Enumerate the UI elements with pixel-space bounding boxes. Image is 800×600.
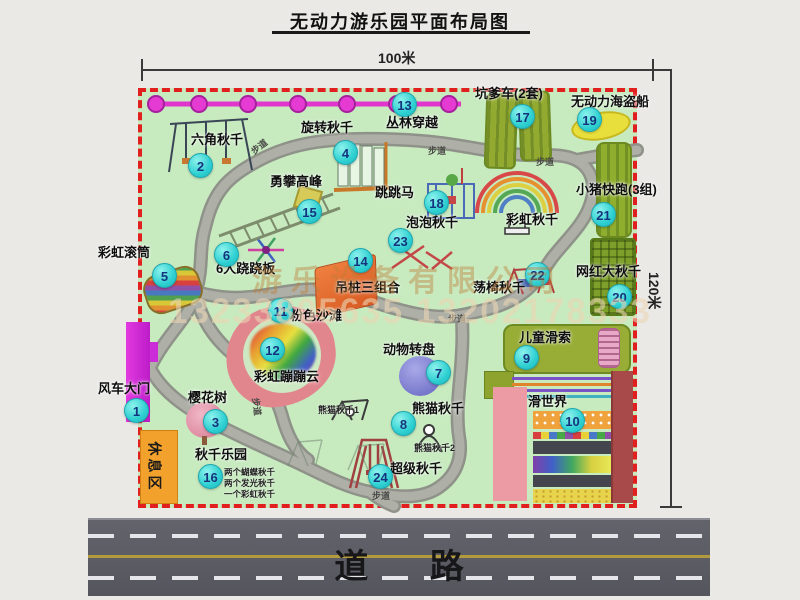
label-rotating-swing: 旋转秋千 xyxy=(301,121,353,136)
label-jumping-horse: 跳跳马 xyxy=(375,186,414,201)
walkway-label: 步道 xyxy=(428,144,446,157)
pit-car-panel-1 xyxy=(484,92,519,169)
label-climbing-peak: 勇攀高峰 xyxy=(270,175,322,190)
badge-19: 19 xyxy=(577,107,602,132)
badge-14: 14 xyxy=(348,248,373,273)
label-animal-carousel: 动物转盘 xyxy=(383,343,435,358)
badge-21: 21 xyxy=(591,202,616,227)
dim-line-top xyxy=(142,69,672,71)
label-windmill-gate: 风车大门 xyxy=(98,382,150,397)
zipline-track-3 xyxy=(512,389,614,392)
badge-13: 13 xyxy=(392,92,417,117)
label-swing-chair: 荡椅秋千 xyxy=(473,281,525,296)
label-pit-car: 坑爹车(2套) xyxy=(475,87,543,102)
badge-18: 18 xyxy=(424,190,449,215)
slide-stripe-rainbow xyxy=(533,456,611,473)
label-swing-park: 秋千乐园 xyxy=(195,448,247,463)
slide-world-tower-bar xyxy=(611,371,633,503)
badge-8: 8 xyxy=(391,411,416,436)
badge-3: 3 xyxy=(203,409,228,434)
zipline-track-1 xyxy=(512,377,614,380)
slide-stripe-yellow xyxy=(533,489,611,503)
playground-layout-image: 无动力游乐园平面布局图 100米 120米 xyxy=(0,0,800,600)
label-net-swing: 网红大秋千 xyxy=(576,265,641,280)
badge-10: 10 xyxy=(560,408,585,433)
road-label: 道 路 xyxy=(88,539,710,588)
rest-area-label: 休息区 xyxy=(145,442,165,493)
climbing-ladder-icon xyxy=(219,186,340,250)
badge-22: 22 xyxy=(525,262,550,287)
label-hanging-piles: 吊桩三组合 xyxy=(335,281,400,296)
road: 道 路 xyxy=(88,518,710,596)
label-pink-beach: 粉色沙滩 xyxy=(290,309,342,324)
badge-12: 12 xyxy=(260,337,285,362)
road-lane-dash xyxy=(88,534,710,538)
label-rainbow-cloud: 彩虹蹦蹦云 xyxy=(254,370,319,385)
walkway-label: 步道 xyxy=(249,397,264,417)
title-underline xyxy=(272,31,530,34)
zipline-track-2 xyxy=(512,383,614,386)
badge-15: 15 xyxy=(297,199,322,224)
label-pig-run: 小猪快跑(3组) xyxy=(576,183,657,198)
badge-4: 4 xyxy=(333,140,358,165)
dim-tick-top-right xyxy=(652,59,654,81)
zipline-coil-icon xyxy=(598,328,620,368)
badge-23: 23 xyxy=(388,228,413,253)
badge-24: 24 xyxy=(368,464,393,489)
label-swing-park-note-3: 一个彩虹秋千 xyxy=(224,488,275,500)
badge-2: 2 xyxy=(188,153,213,178)
label-cherry-tree: 樱花树 xyxy=(188,391,227,406)
label-panda-swing: 熊猫秋千 xyxy=(412,402,464,417)
badge-17: 17 xyxy=(510,104,535,129)
label-bubble-swing: 泡泡秋千 xyxy=(406,216,458,231)
dim-height-label: 120米 xyxy=(644,272,664,309)
badge-5: 5 xyxy=(152,263,177,288)
windmill-gate-step xyxy=(150,342,158,362)
dim-tick-right-bottom xyxy=(660,506,682,508)
label-super-swing: 超级秋千 xyxy=(390,462,442,477)
badge-9: 9 xyxy=(514,345,539,370)
cherry-tree-trunk xyxy=(202,436,207,445)
badge-1: 1 xyxy=(124,398,149,423)
label-panda-swing-2: 熊猫秋千2 xyxy=(414,441,455,454)
badge-6: 6 xyxy=(214,242,239,267)
badge-20: 20 xyxy=(607,284,632,309)
dim-tick-top-left xyxy=(141,59,143,81)
label-jungle-crossing: 丛林穿越 xyxy=(386,116,438,131)
label-rainbow-swing: 彩虹秋千 xyxy=(506,213,558,228)
dim-line-right xyxy=(670,70,672,508)
badge-7: 7 xyxy=(426,360,451,385)
slide-world-pink-bar xyxy=(493,387,527,501)
walkway-label: 步道 xyxy=(536,155,554,168)
seesaw-spinner-icon xyxy=(248,238,284,262)
badge-16: 16 xyxy=(198,464,223,489)
label-rainbow-roller: 彩虹滚筒 xyxy=(98,246,150,261)
slide-stripe-dark-2 xyxy=(533,475,611,487)
label-kids-zipline: 儿童滑索 xyxy=(519,331,571,346)
map-graphics xyxy=(0,0,800,600)
walkway-label: 步道 xyxy=(372,489,390,502)
label-panda-swing-1: 熊猫秋千1 xyxy=(318,403,359,416)
dim-width-label: 100米 xyxy=(378,48,415,68)
walkway-label: 步道 xyxy=(448,312,466,325)
label-slide-world: 滑世界 xyxy=(528,395,567,410)
rest-area-box: 休息区 xyxy=(140,430,178,504)
badge-11: 11 xyxy=(268,298,293,323)
slide-stripe-dark-1 xyxy=(533,441,611,454)
label-hex-swing: 六角秋千 xyxy=(191,133,243,148)
